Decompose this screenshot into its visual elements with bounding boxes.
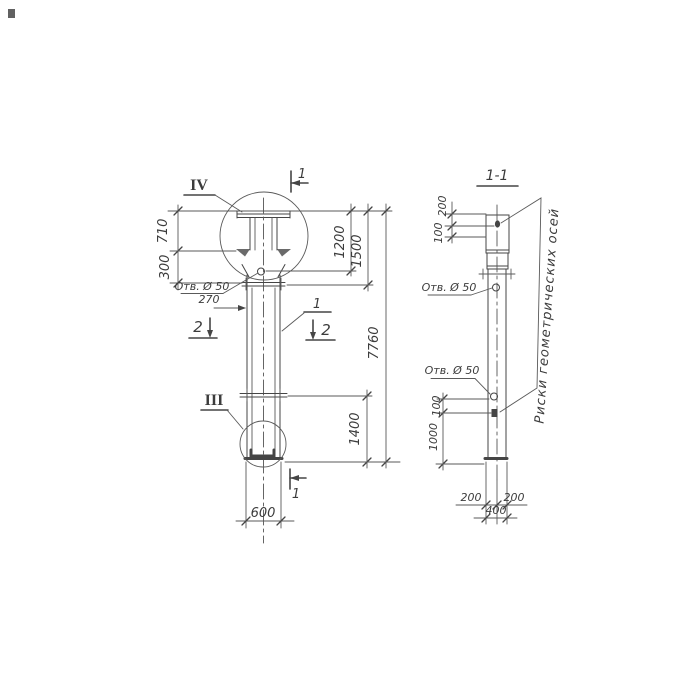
front-right-dimensions: 1200 1500 7760 1400 bbox=[266, 204, 400, 468]
section-marker-1-top: 1 bbox=[291, 167, 308, 192]
dim-200-left: 200 bbox=[461, 491, 482, 504]
detail-circle-IV bbox=[220, 192, 308, 280]
section-marker-2-right: 2 bbox=[306, 320, 335, 340]
dim-270: 270 bbox=[199, 293, 220, 306]
section-marker-1-bottom: 1 bbox=[290, 469, 306, 502]
section-title: 1-1 bbox=[477, 168, 518, 186]
dim-1200: 1200 bbox=[333, 225, 348, 258]
section-2-right-label: 2 bbox=[321, 321, 331, 339]
detail-label-III: III bbox=[201, 392, 243, 429]
section-hole-callout-bottom: Отв. Ø 50 bbox=[425, 364, 490, 394]
section-bottomleft-dimensions: 100 1000 bbox=[427, 393, 491, 470]
section-marker-2-left: 2 bbox=[189, 318, 217, 338]
section-hole-callout-top: Отв. Ø 50 bbox=[422, 281, 492, 295]
front-dim-600: 600 bbox=[236, 462, 294, 528]
drawing-sheet: IV III 710 300 Отв. Ø 50 270 bbox=[0, 0, 700, 700]
detail-IV-text: IV bbox=[190, 177, 208, 194]
section-hole-top bbox=[493, 284, 500, 291]
front-dim-270: 270 bbox=[199, 293, 247, 311]
dim-300: 300 bbox=[158, 255, 173, 280]
dim-200-top: 200 bbox=[436, 196, 449, 217]
dim-1500: 1500 bbox=[350, 234, 365, 267]
section-hole-label-bottom: Отв. Ø 50 bbox=[425, 364, 480, 377]
front-left-dimensions: 710 300 bbox=[156, 205, 242, 290]
section-hole-label-top: Отв. Ø 50 bbox=[422, 281, 477, 294]
technical-drawing: IV III 710 300 Отв. Ø 50 270 bbox=[0, 0, 700, 700]
section-bottom-dimensions: 200 200 400 bbox=[456, 462, 527, 524]
axis-mark-top bbox=[495, 220, 500, 227]
dim-400: 400 bbox=[486, 504, 507, 517]
dim-100-bottom: 100 bbox=[430, 396, 443, 417]
position-1-label: 1 bbox=[313, 297, 321, 312]
front-hole-label: Отв. Ø 50 bbox=[175, 280, 230, 293]
dim-1000: 1000 bbox=[427, 423, 440, 451]
section-hole-bottom bbox=[491, 393, 498, 400]
dim-600: 600 bbox=[251, 506, 276, 521]
bottom-socket bbox=[251, 450, 274, 456]
section-top-dimensions: 200 100 bbox=[432, 196, 494, 244]
section-title-text: 1-1 bbox=[486, 168, 509, 184]
section-column-outline bbox=[479, 205, 515, 480]
dim-1400: 1400 bbox=[348, 412, 363, 445]
axes-note-text: Риски геометрических осей bbox=[532, 207, 562, 424]
dim-7760: 7760 bbox=[367, 326, 382, 359]
section-1-top-label: 1 bbox=[298, 167, 306, 182]
axis-mark-bottom bbox=[492, 409, 498, 417]
detail-III-text: III bbox=[205, 392, 224, 409]
section-1-bottom-label: 1 bbox=[292, 487, 300, 502]
dim-100-top: 100 bbox=[432, 223, 445, 244]
section-view: 1-1 bbox=[422, 168, 563, 524]
dim-200-right: 200 bbox=[504, 491, 525, 504]
front-view: IV III 710 300 Отв. Ø 50 270 bbox=[156, 167, 400, 543]
section-2-left-label: 2 bbox=[193, 318, 203, 336]
scan-artifact bbox=[8, 9, 15, 18]
dim-710: 710 bbox=[156, 219, 171, 244]
detail-label-IV: IV bbox=[184, 177, 242, 212]
